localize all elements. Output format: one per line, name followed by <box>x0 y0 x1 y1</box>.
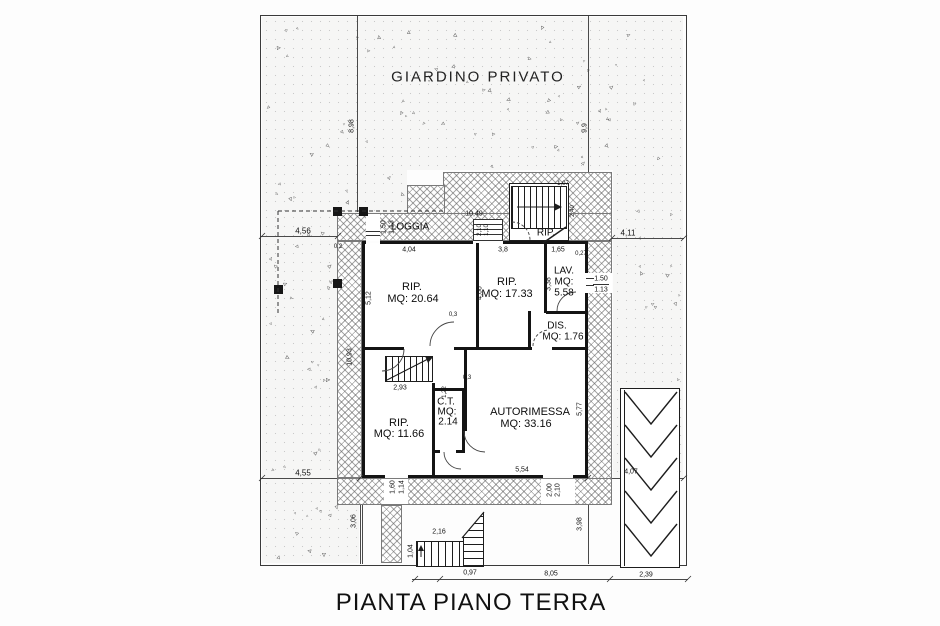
wall-right <box>585 241 588 273</box>
loggia-window-line <box>366 231 380 232</box>
site-line <box>588 16 589 172</box>
fence-post <box>333 207 342 216</box>
dimension-label: 9,9 <box>582 123 589 133</box>
floor-plan-drawing: ▵▵▵▵▵▵▵▵▵▵▵▵▵▵▵▵▵▵▵▵▵▵▵▵▵▵▵▵▵▵▵▵▵▵▵▵▵▵▵▵… <box>0 0 940 626</box>
room-area-ct: 2.14 <box>438 417 457 428</box>
garden-triangle-symbol: ▵ <box>392 45 395 50</box>
garden-triangle-symbol: ▵ <box>322 551 326 559</box>
lav-window-line <box>586 285 594 286</box>
dimension-label: 0,2 <box>334 244 342 250</box>
wall-mid <box>364 347 404 350</box>
site-line <box>357 16 358 212</box>
room-label-rip1: RIP. <box>402 281 422 293</box>
dimension-label: 4,04 <box>402 247 416 254</box>
lav-window-line <box>586 278 594 279</box>
garden-triangle-symbol: ▵ <box>286 54 289 59</box>
dimension-label: 3,98 <box>577 517 584 531</box>
dimension-label: 2,40 <box>570 205 576 217</box>
room-area-rip2: MQ: 17.33 <box>481 288 532 300</box>
dimension-label: 1,13 <box>389 220 396 234</box>
dimension-label: 4,56 <box>295 227 311 236</box>
lav-window-width: 1.50 <box>594 276 608 283</box>
dimension-label: 1,14 <box>399 480 406 494</box>
page-title: PIANTA PIANO TERRA <box>336 589 607 617</box>
loggia-window-line <box>366 235 380 236</box>
dimension-label: 5,12 <box>366 291 373 305</box>
room-label-lav: LAV. <box>554 266 574 277</box>
room-area-autorimessa: MQ: 33.16 <box>500 418 551 430</box>
garden-triangle-symbol: ▵ <box>674 379 679 382</box>
driveway-ramp <box>620 388 680 568</box>
dimension-label: 3,8 <box>498 247 508 254</box>
dimension-label: 2,93 <box>393 385 407 392</box>
dimension-label: 8,05 <box>544 571 558 578</box>
garden-triangle-symbol: ▵ <box>292 196 297 199</box>
wall-ct-top <box>432 388 465 391</box>
dimension-label: 5,77 <box>577 402 584 416</box>
dimension-label: 4,66 <box>477 286 484 300</box>
dimension-label: 4,55 <box>295 469 311 478</box>
room-label-lav-mq: MQ: <box>555 277 574 288</box>
room-label-rip-scala: RIP. <box>537 228 555 239</box>
site-line <box>588 505 589 564</box>
garden-triangle-symbol: ▵ <box>306 367 313 370</box>
dimension-label: 2,39 <box>639 572 653 579</box>
wall-right <box>585 293 588 478</box>
lav-window-height: 1.13 <box>594 287 608 294</box>
dimension-label: 2,10 <box>555 483 562 497</box>
wall-bottom <box>573 475 588 478</box>
dimension-label: 5,54 <box>515 467 529 474</box>
garden-triangle-symbol: ▵ <box>474 131 477 136</box>
dimension-label: 1,10 <box>484 224 490 236</box>
garden-triangle-symbol: ▵ <box>606 117 609 123</box>
paved-path-entry <box>381 505 402 563</box>
dimension-label: 1,65 <box>551 247 565 254</box>
fence-post <box>274 285 283 294</box>
garden-triangle-symbol: ▵ <box>489 132 496 136</box>
dimension-label: 4,11 <box>621 229 636 238</box>
staircase-external-col <box>463 513 484 567</box>
dimension-label: 4,07 <box>624 469 638 476</box>
garden-triangle-symbol: ▵ <box>407 28 411 35</box>
dimension-label: 1,50 <box>381 220 388 234</box>
fence-post <box>359 207 368 216</box>
wall-bottom <box>362 475 385 478</box>
garden-triangle-symbol: ▵ <box>401 99 404 104</box>
dimension-label: 3,38 <box>546 277 553 291</box>
garden-triangle-symbol: ▵ <box>284 27 287 33</box>
fraction-bar <box>593 284 609 285</box>
garden-triangle-symbol: ▵ <box>615 63 617 67</box>
dimension-label: 0,3 <box>449 312 457 318</box>
dimension-label: 3,06 <box>351 514 358 528</box>
room-area-rip3: MQ: 11.66 <box>374 428 425 440</box>
garden-triangle-symbol: ▵ <box>376 33 381 41</box>
site-line <box>612 238 684 239</box>
garden-triangle-symbol: ▵ <box>549 40 551 45</box>
staircase-internal <box>385 356 433 382</box>
dimension-label: 2,10 <box>477 224 483 236</box>
room-label-loggia: LOGGIA <box>391 222 429 233</box>
wall-ct-right <box>462 388 465 452</box>
garden-area-left <box>262 213 337 478</box>
room-label-dis: DIS. <box>547 321 566 332</box>
dimension-label: 10,49 <box>465 211 483 218</box>
dimension-label: 0,27 <box>575 251 587 257</box>
wall-lav-dis <box>546 311 586 314</box>
dimension-label: 0,97 <box>463 570 477 577</box>
garden-triangle-symbol: ▵ <box>275 46 283 50</box>
dimension-label: 2,16 <box>432 529 446 536</box>
paved-terrace-step <box>407 185 445 214</box>
loggia-window <box>366 214 380 241</box>
wall-ct-bottom <box>432 450 440 453</box>
wall-left <box>362 241 365 478</box>
wall-ct-bottom <box>456 450 465 453</box>
staircase-top <box>511 186 567 229</box>
dimension-label: 1,22 <box>442 386 448 398</box>
room-label-autorimessa: AUTORIMESSA <box>490 406 570 418</box>
ramp-inner-edge <box>624 390 625 566</box>
wall-mid <box>552 347 586 350</box>
room-area-dis: MQ: 1.76 <box>542 332 583 343</box>
room-label-rip2: RIP. <box>497 276 517 288</box>
garden-triangle-symbol: ▵ <box>365 49 371 52</box>
garden-triangle-symbol: ▵ <box>557 119 563 122</box>
garden-triangle-symbol: ▵ <box>268 322 273 325</box>
dimension-label: 0,3 <box>463 375 471 381</box>
dimension-label: 10,93 <box>347 348 354 366</box>
wall-bottom <box>408 475 543 478</box>
room-area-lav: 5.58 <box>554 288 573 299</box>
dimension-label: 1,60 <box>390 480 397 494</box>
wall-top <box>380 241 473 244</box>
wall-dis-left <box>528 311 531 349</box>
dimension-label: 1,07 <box>557 181 569 187</box>
bottom-dimension-line <box>412 579 688 580</box>
room-area-rip1: MQ: 20.64 <box>387 293 438 305</box>
courtyard-edge-line <box>362 505 363 564</box>
dimension-label: 2,00 <box>547 483 554 497</box>
dimension-label: 1,04 <box>408 544 415 558</box>
garden-label: GIARDINO PRIVATO <box>391 69 565 86</box>
site-line <box>261 236 338 237</box>
wall-rip3-right <box>432 383 435 475</box>
dimension-label: 8,98 <box>349 119 356 133</box>
staircase-external-run <box>416 541 467 567</box>
fence-post <box>333 279 342 288</box>
